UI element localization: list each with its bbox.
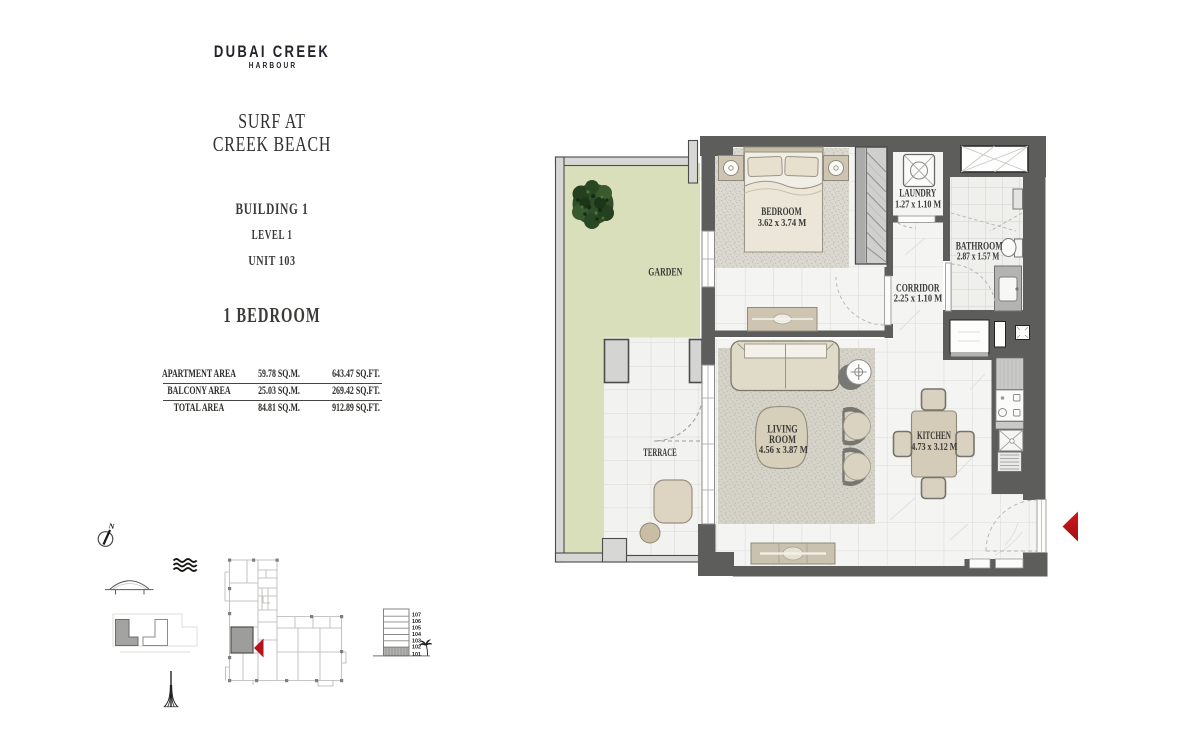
svg-text:TERRACE: TERRACE (643, 445, 677, 459)
svg-text:GARDEN: GARDEN (648, 265, 682, 279)
svg-text:104: 104 (412, 632, 421, 638)
svg-text:3.62 x 3.74 M: 3.62 x 3.74 M (758, 217, 807, 229)
svg-text:105: 105 (412, 626, 421, 632)
svg-text:N: N (108, 521, 116, 531)
svg-text:2.87 x 1.57 M: 2.87 x 1.57 M (957, 250, 1000, 262)
svg-text:107: 107 (412, 613, 421, 619)
svg-text:102: 102 (412, 645, 421, 651)
svg-text:BEDROOM: BEDROOM (761, 204, 802, 218)
svg-text:KITCHEN: KITCHEN (917, 428, 951, 442)
svg-text:2.25 x 1.10 M: 2.25 x 1.10 M (894, 292, 943, 304)
svg-text:106: 106 (412, 619, 421, 625)
svg-text:101: 101 (412, 652, 421, 658)
svg-text:103: 103 (412, 638, 421, 644)
svg-text:4.73 x 3.12 M: 4.73 x 3.12 M (911, 441, 957, 453)
svg-text:LAUNDRY: LAUNDRY (899, 185, 936, 199)
svg-text:4.56 x 3.87 M: 4.56 x 3.87 M (759, 444, 808, 456)
svg-text:1.27 x 1.10 M: 1.27 x 1.10 M (895, 199, 941, 211)
